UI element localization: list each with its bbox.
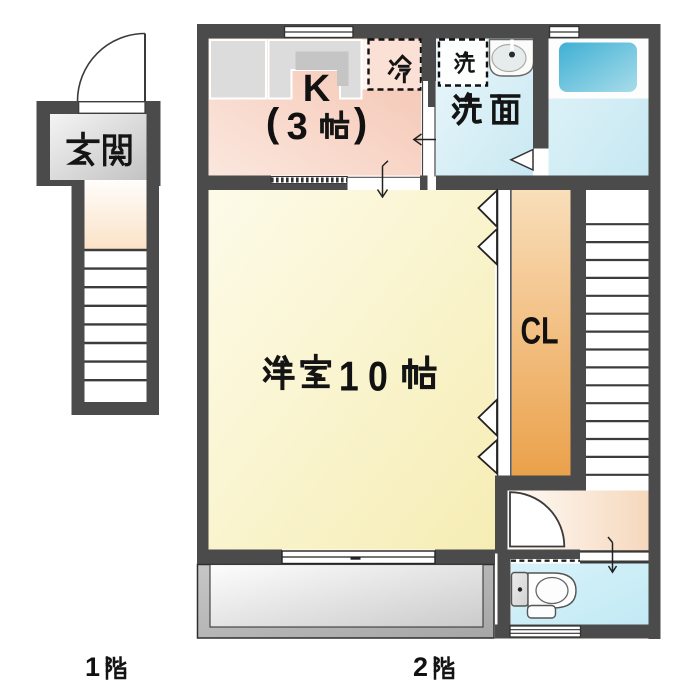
svg-text:): ) (354, 101, 367, 145)
svg-text:3: 3 (287, 106, 308, 148)
svg-text:CL: CL (521, 311, 559, 353)
svg-text:1: 1 (339, 354, 359, 400)
svg-text:2: 2 (413, 652, 428, 682)
svg-text:1: 1 (85, 652, 100, 682)
svg-text:(: ( (266, 101, 280, 145)
svg-text:0: 0 (368, 354, 388, 400)
svg-text:K: K (303, 68, 331, 110)
